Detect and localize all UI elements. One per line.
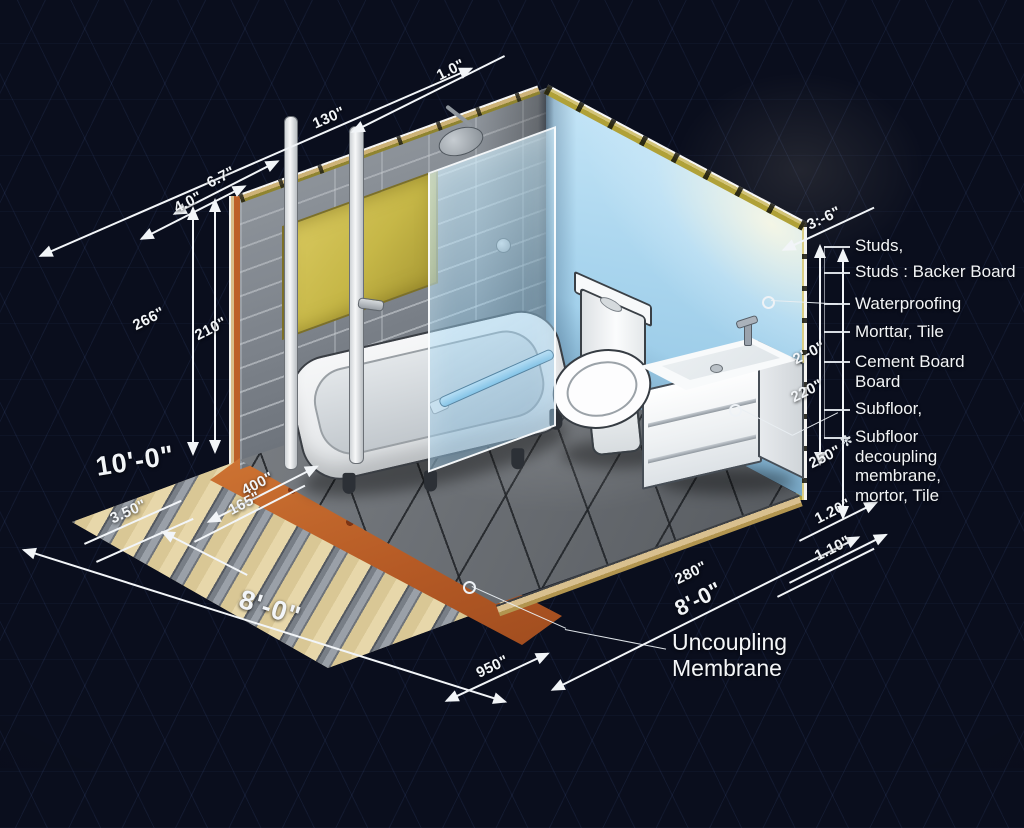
label-tick (824, 246, 850, 248)
layer-label-mortar-tile: Morttar, Tile (855, 322, 944, 342)
label-tick (824, 331, 850, 333)
label-tick (824, 303, 850, 305)
toilet-seat (560, 353, 644, 425)
leader-dot (762, 296, 775, 309)
dim-right-height-line (842, 250, 844, 518)
layer-label-waterproofing: Waterproofing (855, 294, 961, 314)
layer-label-cement-board: Cement Board Board (855, 352, 965, 391)
tub-foot (511, 448, 524, 469)
tub-foot (424, 470, 437, 491)
layer-label-subfloor-membrane: Subfloor decoupling membrane, mortor, Ti… (855, 427, 941, 505)
supply-pipe (349, 126, 364, 464)
uncoupling-membrane-callout: Uncoupling Membrane (672, 630, 787, 682)
leader-dot (729, 404, 742, 417)
label-tick (824, 272, 850, 274)
leader-dot (463, 581, 476, 594)
layer-label-backer-board: Studs : Backer Board (855, 262, 1016, 282)
layer-label-studs: Studs, (855, 236, 903, 256)
layer-label-subfloor: Subfloor, (855, 399, 922, 419)
diagram-stage: 1.0" 130" 6.7" 4.0" 266" 210" 400" 165" … (0, 0, 1024, 768)
glass-shower-screen (428, 126, 556, 473)
tub-foot (343, 473, 356, 494)
supply-pipe (284, 116, 298, 470)
label-tick (824, 361, 850, 363)
sink-drain (710, 364, 723, 373)
label-tick (824, 409, 850, 411)
